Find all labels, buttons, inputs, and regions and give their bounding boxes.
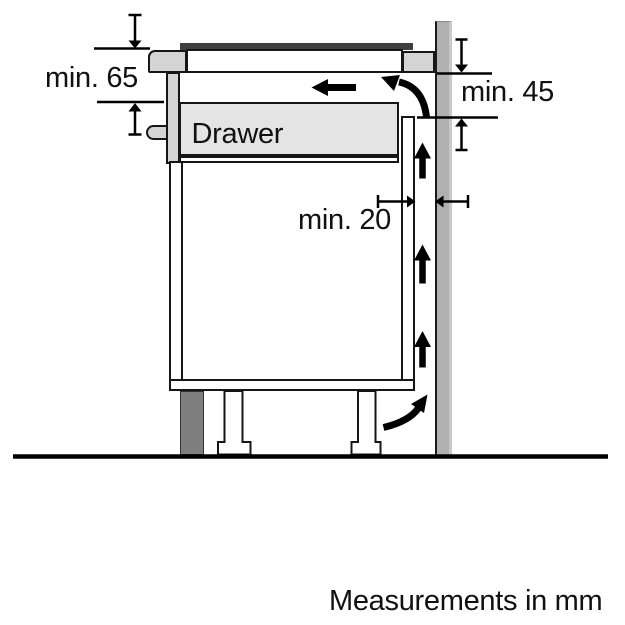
dimension-min20 xyxy=(378,195,468,208)
wall xyxy=(435,21,452,455)
drawer-box: Drawer xyxy=(179,102,399,157)
drawer-label: Drawer xyxy=(192,120,284,149)
hob-body xyxy=(186,49,403,73)
plinth-block xyxy=(180,391,204,455)
worktop-front-edge xyxy=(148,50,187,73)
dimension-label-min45: min. 45 xyxy=(461,78,554,107)
drawer-front-panel xyxy=(166,72,180,164)
airflow-curve-top xyxy=(399,82,427,117)
worktop-rear-section xyxy=(402,51,435,74)
cabinet-bottom-panel xyxy=(169,379,415,391)
airflow-curve-bottom xyxy=(384,408,419,428)
airflow-arrowhead-front xyxy=(312,79,329,96)
cabinet-front-frame xyxy=(169,161,183,391)
cabinet-leg-right xyxy=(352,391,381,455)
drawer-bottom-rail xyxy=(179,156,399,164)
airflow-arrowhead-top xyxy=(381,75,400,91)
cabinet-rear-panel xyxy=(401,116,415,391)
cabinet-leg-left xyxy=(218,391,251,455)
dimension-label-min20: min. 20 xyxy=(298,206,391,235)
installation-diagram: Drawer xyxy=(0,0,625,625)
dimension-label-min65: min. 65 xyxy=(45,64,138,93)
measurements-footnote: Measurements in mm xyxy=(329,587,602,616)
airflow-arrowhead-bottom xyxy=(411,395,428,414)
